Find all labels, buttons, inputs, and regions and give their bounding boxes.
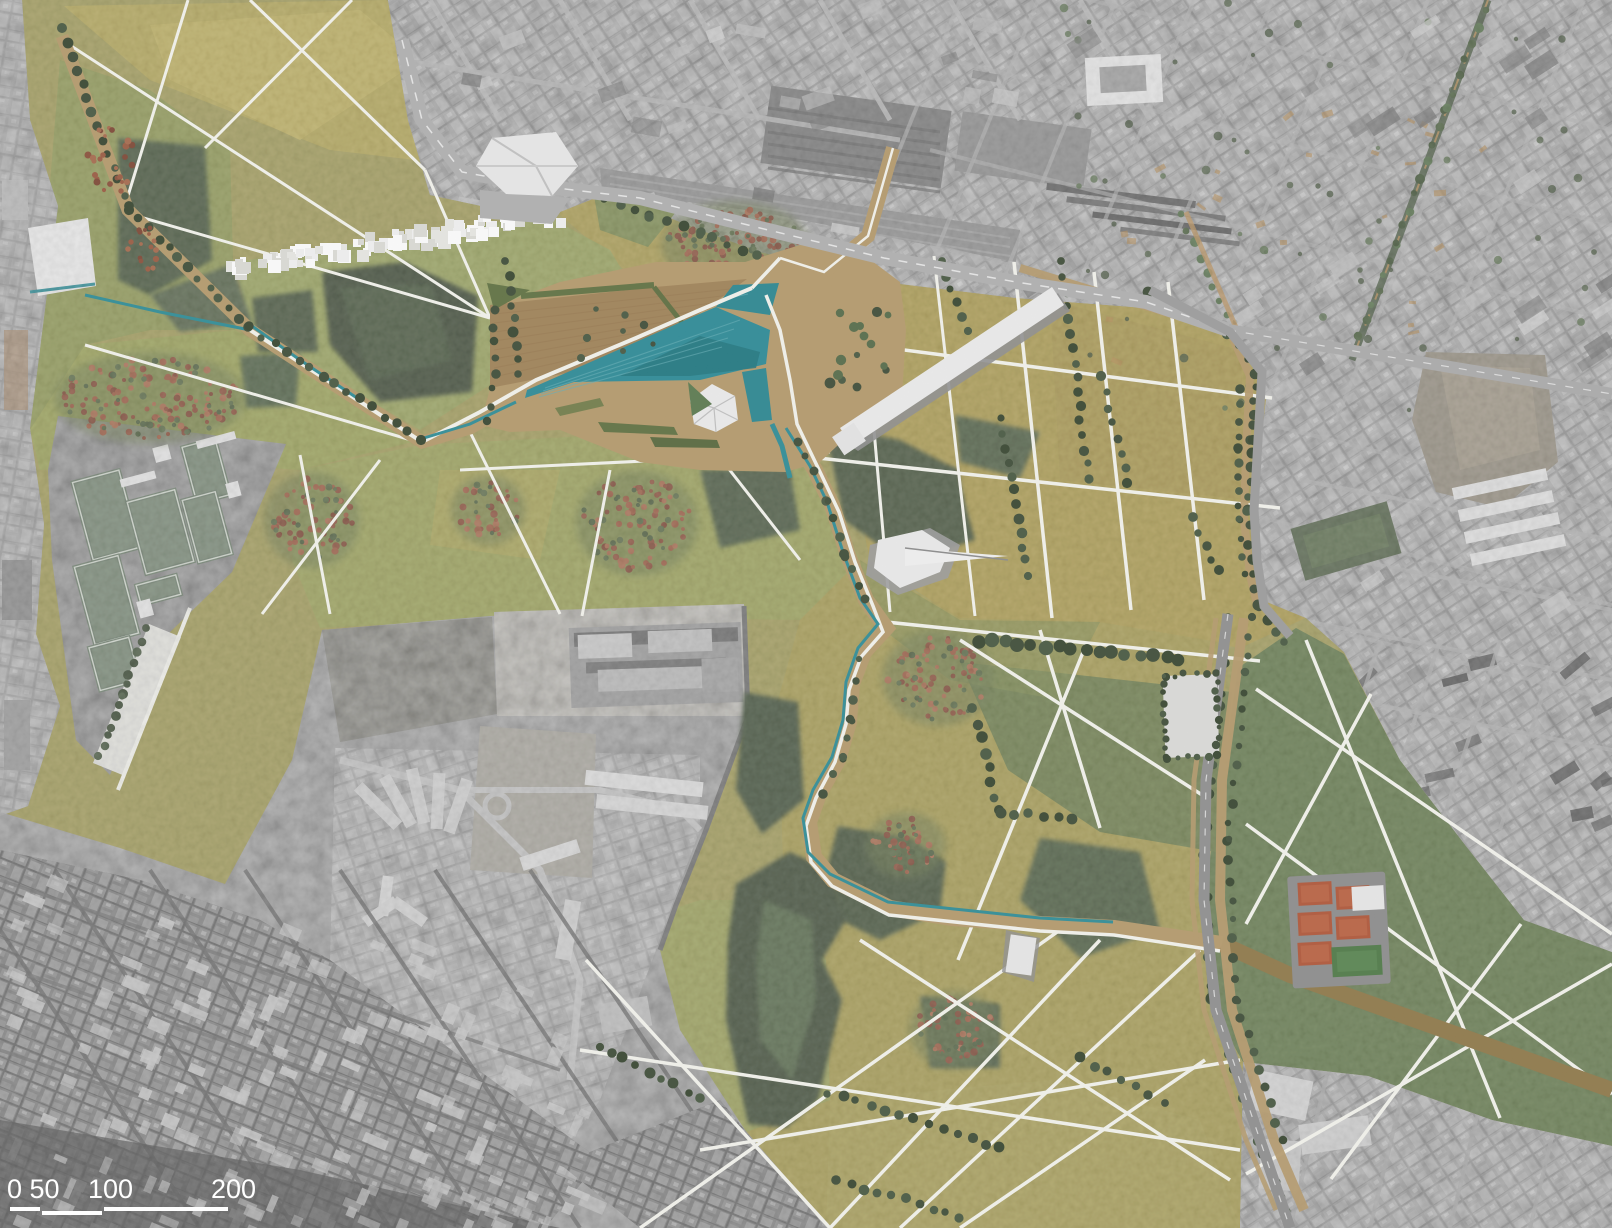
svg-text:100: 100 <box>88 1174 133 1204</box>
svg-text:200: 200 <box>211 1174 256 1204</box>
svg-text:0 50: 0 50 <box>7 1174 60 1204</box>
